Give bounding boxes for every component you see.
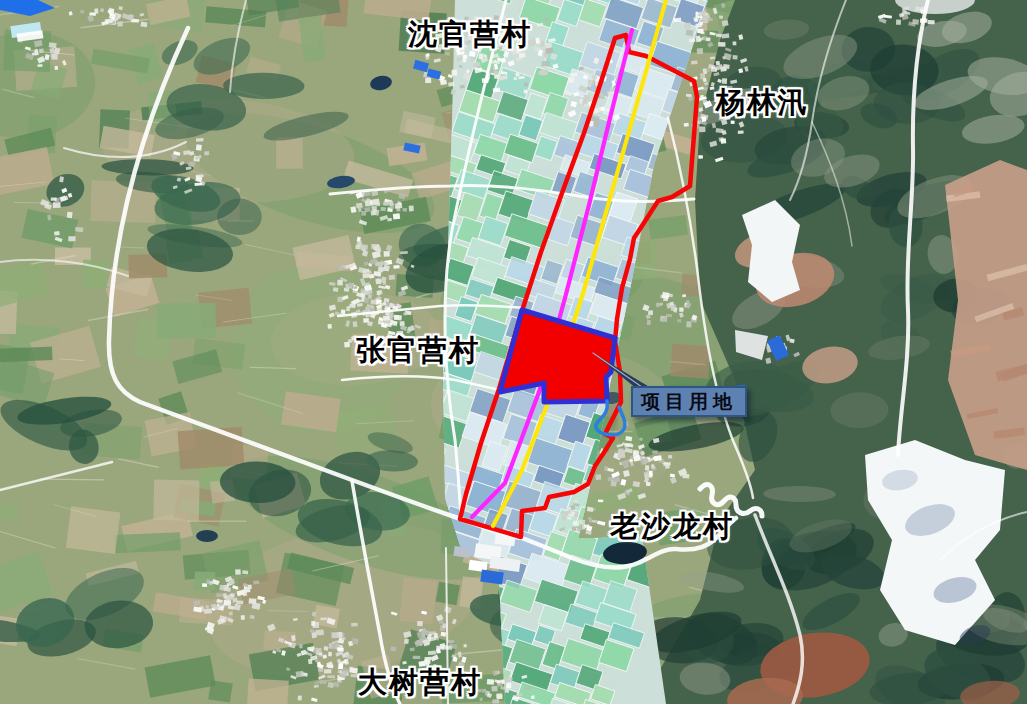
village-label-laoshalong: 老沙龙村 bbox=[610, 512, 734, 541]
village-label-zhangguanying: 张官营村 bbox=[356, 336, 480, 365]
satellite-basemap bbox=[0, 0, 1027, 704]
satellite-map: 沈官营村 杨林汛 张官营村 老沙龙村 大树营村 项目用地 bbox=[0, 0, 1027, 704]
village-label-yanglinxun: 杨林汛 bbox=[716, 88, 809, 117]
village-label-dashuying: 大树营村 bbox=[358, 668, 482, 697]
village-label-shenguanying: 沈官营村 bbox=[408, 20, 532, 49]
project-land-callout: 项目用地 bbox=[631, 386, 747, 417]
